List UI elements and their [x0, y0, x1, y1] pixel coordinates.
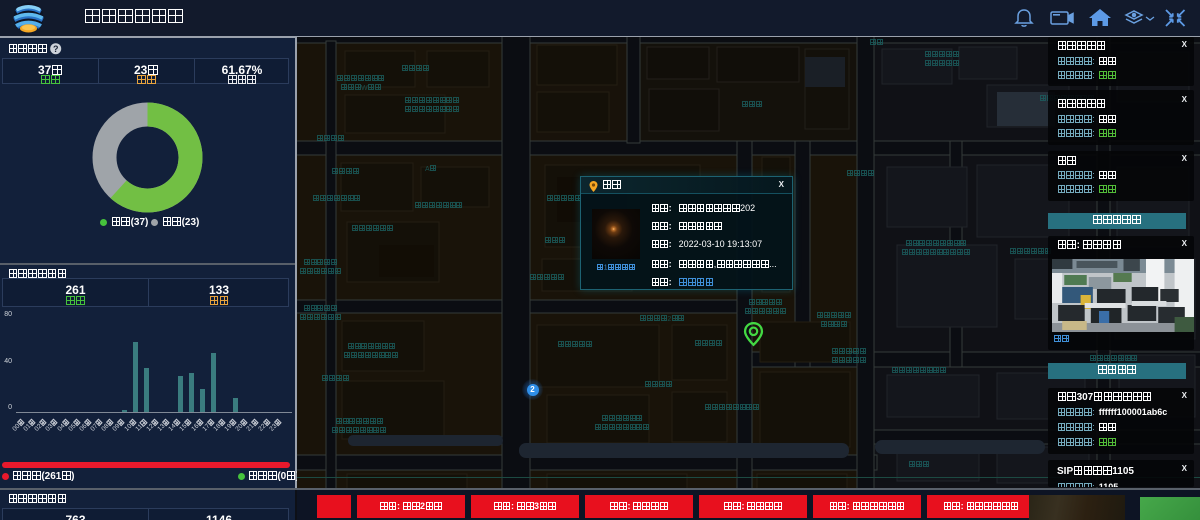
svg-text:?: ? [53, 44, 59, 54]
